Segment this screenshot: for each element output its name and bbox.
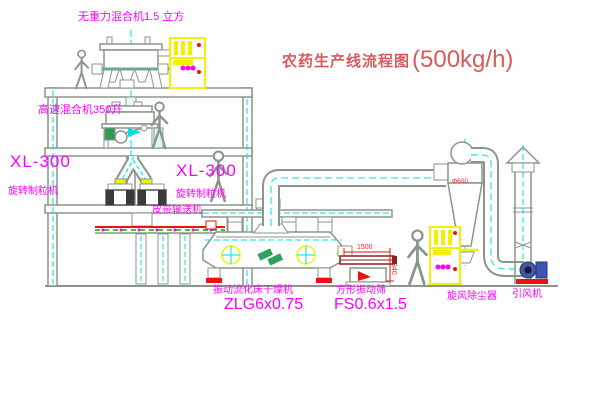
label-xl300-mid: XL-300 [176, 162, 237, 179]
label-high-speed-mixer: 高速混合机350升 [38, 105, 122, 116]
title-capacity: (500kg/h) [412, 46, 513, 74]
cad-flow-diagram: 农药生产线流程图 (500kg/h) 无重力混合机1.5 立方 高速混合机350… [0, 0, 600, 403]
rotary-granulators [106, 184, 166, 205]
control-cabinet-top [170, 38, 205, 88]
label-screen-model: FS0.6x1.5 [334, 297, 407, 313]
label-gravity-free-mixer: 无重力混合机1.5 立方 [78, 12, 184, 23]
label-dryer-name: 振动流化床干燥机 [213, 286, 293, 296]
diagram-title: 农药生产线流程图 (500kg/h) [282, 46, 513, 74]
label-xl300-left: XL-300 [10, 153, 71, 170]
person-ground [408, 231, 426, 284]
person-top-floor [75, 50, 88, 88]
label-granulator-left: 旋转制粒机 [8, 187, 58, 197]
dimension-1500: 1500 [357, 244, 373, 251]
vibrating-screen [338, 246, 397, 286]
label-screen-name: 方形振动筛 [336, 286, 386, 296]
label-dryer-model: ZLG6x0.75 [224, 297, 303, 313]
control-cabinet-bottom [428, 227, 462, 284]
label-granulator-mid: 旋转制粒机 [176, 190, 226, 200]
label-cyclone: 旋风除尘器 [447, 292, 497, 302]
label-belt-conveyor: 皮带输送机 [152, 206, 202, 216]
title-text: 农药生产线流程图 [282, 50, 410, 71]
label-fan: 引风机 [512, 290, 542, 300]
dryer-exhaust-duct [254, 178, 446, 233]
dimension-phi600: Φ600 [452, 179, 468, 186]
dimension-340: 340 [390, 263, 397, 275]
